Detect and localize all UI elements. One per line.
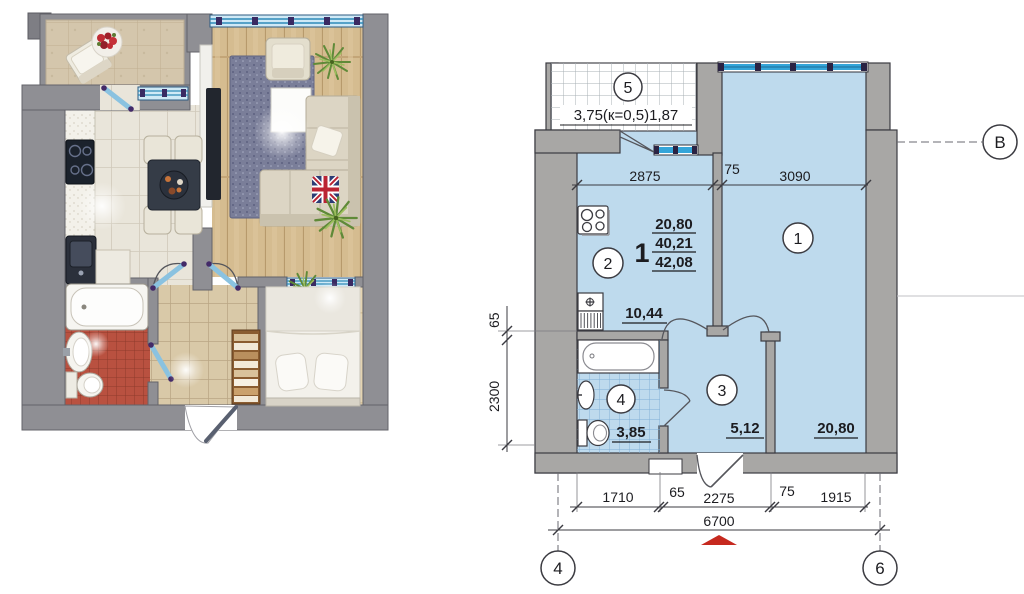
apartment-number: 1 [634, 238, 649, 268]
dim-top-room1: 3090 [779, 168, 810, 184]
dim-top-kitchen: 2875 [629, 168, 660, 184]
window-pier [697, 63, 722, 155]
dim-left-65: 65 [486, 312, 502, 328]
room1-window [718, 62, 868, 72]
kitchen-area: 10,44 [625, 305, 663, 322]
kitchen-bath-wall [577, 331, 668, 340]
dim-bottom-2275: 2275 [703, 490, 734, 506]
bath-number: 4 [617, 392, 626, 409]
apartment-area-total: 42,08 [655, 254, 693, 271]
dim-total-6700: 6700 [703, 513, 734, 529]
hall-room-wall [766, 332, 775, 453]
apartment-area-living: 20,80 [655, 216, 693, 233]
apartment-area-mid: 40,21 [655, 235, 693, 252]
axis-label-b: В [994, 133, 1005, 152]
bath-right-wall [659, 340, 668, 388]
balcony-area-label: 3,75(к=0,5)1,87 [574, 107, 679, 124]
left-outer-wall [535, 130, 577, 473]
axis-label-4: 4 [553, 559, 562, 578]
tech-bathtub [578, 340, 659, 373]
dim-bottom-1915: 1915 [820, 489, 851, 505]
right-outer-wall [866, 130, 897, 473]
floor-plan-page: 5 3,75(к=0,5)1,87 2875 75 3090 65 2300 2… [0, 0, 1024, 594]
right-outer-wall-upper [866, 63, 890, 130]
balcony-number: 5 [624, 80, 633, 97]
room1-number: 1 [794, 231, 803, 248]
bath-area: 3,85 [616, 424, 645, 441]
dim-top-partition: 75 [724, 161, 740, 177]
hall-number: 3 [718, 383, 727, 400]
room1-area: 20,80 [817, 420, 855, 437]
dim-bottom-1710: 1710 [602, 489, 633, 505]
kitchen-top-wall [535, 130, 620, 153]
hall-area: 5,12 [730, 420, 759, 437]
wall-niche [649, 459, 682, 474]
kitchen-window [654, 145, 698, 155]
tech-stove [578, 206, 609, 235]
hall-room-jamb [761, 332, 780, 341]
axis-label-6: 6 [875, 559, 884, 578]
dim-left-2300: 2300 [486, 381, 502, 412]
entry-opening [697, 453, 743, 474]
partition-jamb [707, 326, 728, 336]
dim-bottom-65: 65 [669, 484, 685, 500]
bath-right-wall-stub [659, 426, 668, 453]
technical-floor-plan: 5 3,75(к=0,5)1,87 2875 75 3090 65 2300 2… [0, 0, 1024, 594]
entry-arrow-icon [701, 535, 737, 545]
kitchen-number: 2 [604, 256, 613, 273]
tech-toilet [578, 420, 609, 446]
dim-bottom-75: 75 [779, 483, 795, 499]
tech-sink [578, 293, 603, 330]
